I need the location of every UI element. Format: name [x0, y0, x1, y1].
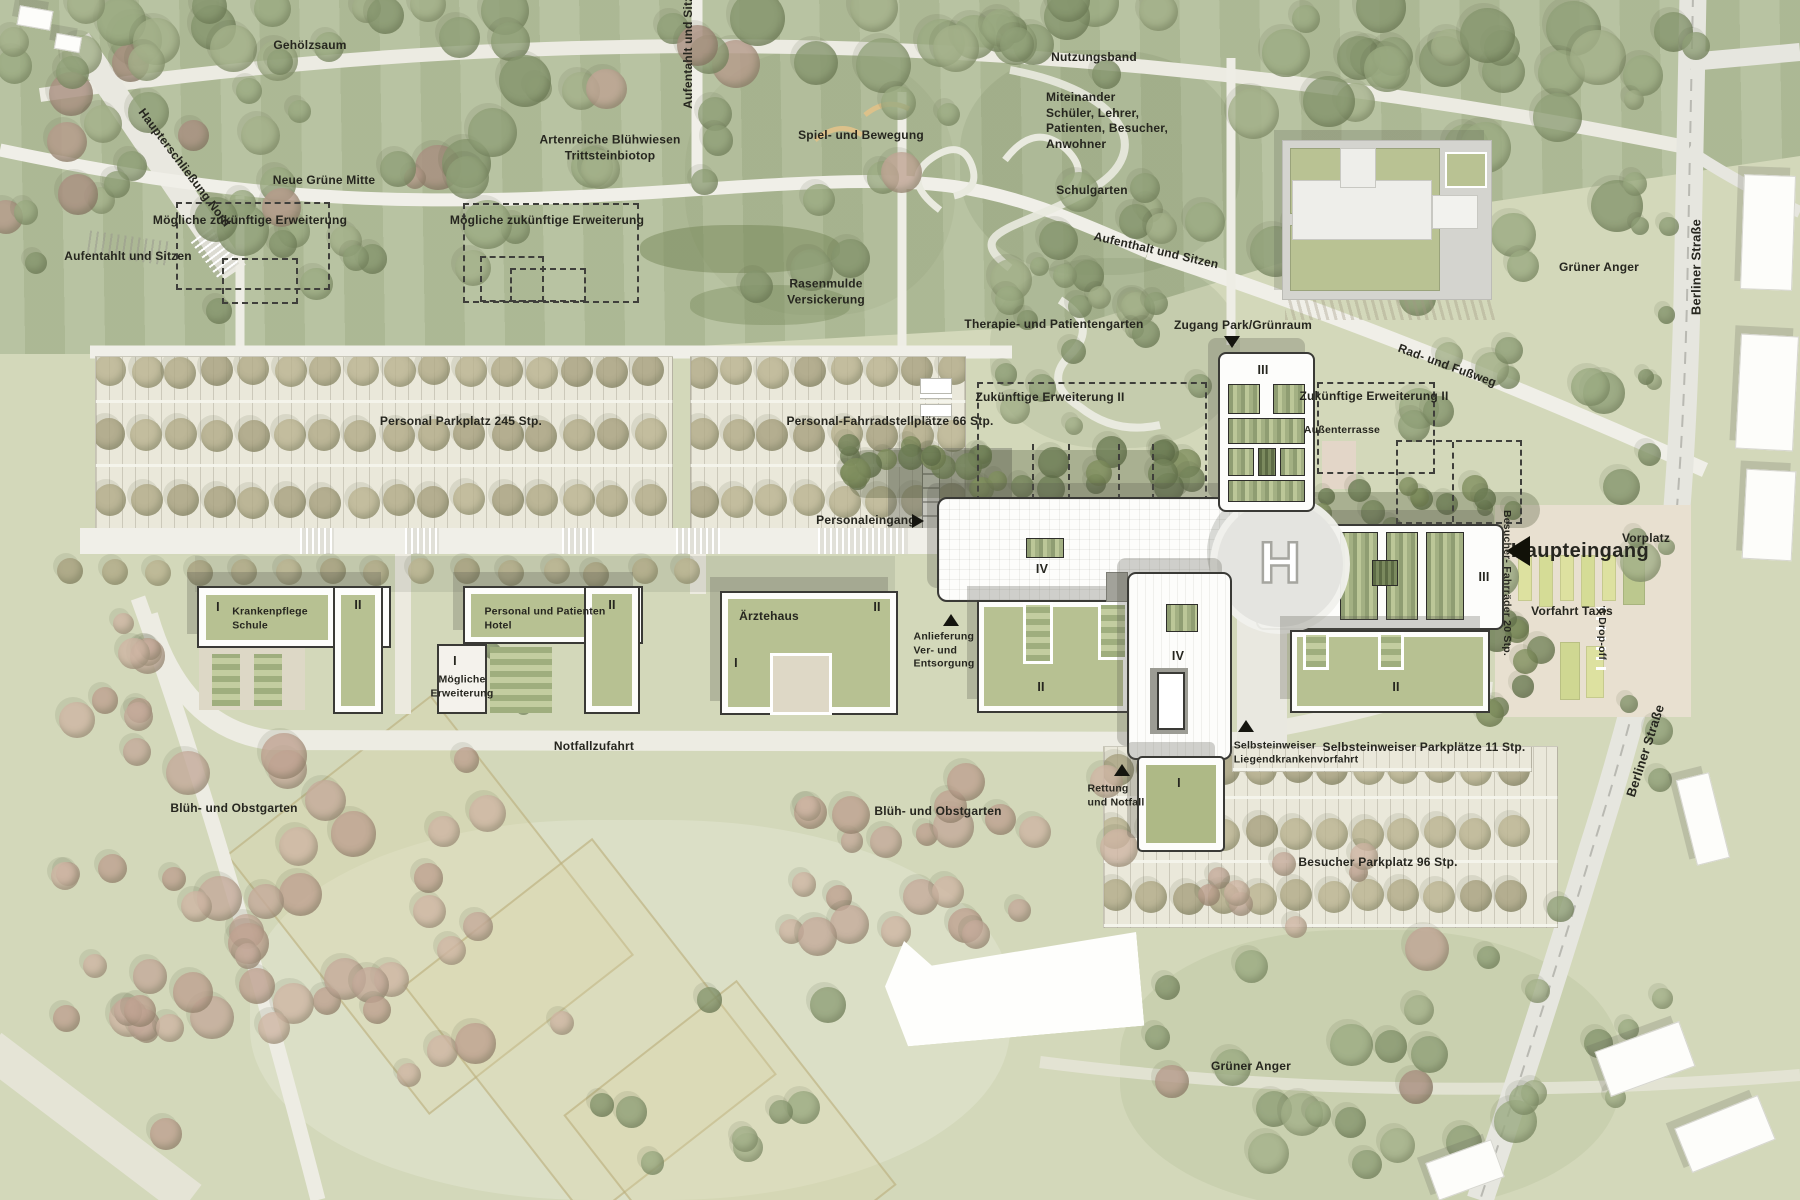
label-aussenterrasse: Außenterrasse — [1304, 424, 1380, 438]
level-label-ward-east-II: II — [1392, 679, 1399, 695]
label-berliner-strasse-top: Berliner Straße — [1689, 219, 1706, 315]
label-schulgarten: Schulgarten — [1056, 183, 1128, 199]
level-label-wing-IV: IV — [1172, 648, 1184, 664]
level-label-aerzte-I: I — [734, 655, 738, 671]
label-personal-parkplatz: Personal Parkplatz 245 Stp. — [380, 414, 542, 430]
label-berliner-strasse-bottom: Berliner Straße — [1623, 703, 1669, 800]
label-blueh-obstgarten-mid: Blüh- und Obstgarten — [874, 804, 1001, 820]
label-drop-off: 6 Drop-off — [1594, 608, 1608, 660]
zugang-park-arrow-icon — [1224, 336, 1240, 348]
label-fahrradstellplaetze: Personal-Fahrradstellplätze 66 Stp. — [786, 414, 993, 430]
label-aufenthalt-sitzen-right: Aufenthalt und Sitzen — [1092, 229, 1220, 273]
label-moegliche-erweiterung-hotel: Mögliche Erweiterung — [431, 673, 494, 700]
label-zuk-erweiterung-left: Zukünftige Erweiterung II — [975, 390, 1124, 406]
label-zugang-park: Zugang Park/Grünraum — [1174, 318, 1312, 334]
label-aufenthalt-sitzen-left: Aufentahlt und Sitzen — [64, 249, 192, 265]
label-gruener-anger-top: Grüner Anger — [1559, 260, 1639, 276]
label-zuk-erweiterung-right: Zukünftige Erweiterung II — [1299, 389, 1448, 405]
label-vorplatz: Vorplatz — [1622, 531, 1670, 547]
label-aufenthalt-sitzen-top: Aufentahlt und Sitzen — [681, 0, 697, 109]
label-moegliche-erweiterung-2: Mögliche zukünftige Erweiterung — [450, 213, 644, 229]
level-label-wing-III: III — [1478, 569, 1489, 585]
level-label-wing-I: I — [1177, 775, 1181, 791]
label-besucher-parkplatz: Besucher Parkplatz 96 Stp. — [1298, 855, 1457, 871]
level-label-hotel-I: I — [453, 653, 457, 669]
label-miteinander: Miteinander Schüler, Lehrer, Patienten, … — [1046, 90, 1168, 152]
label-nutzungsband: Nutzungsband — [1051, 50, 1137, 66]
anlieferung-arrow-icon — [943, 614, 959, 626]
site-plan-canvas: H Gehölzsaum Haupterschließung Nord Aufe… — [0, 0, 1800, 1200]
selbsteinweiser-arrow-icon — [1238, 720, 1254, 732]
level-label-ward-west-II: II — [1037, 679, 1044, 695]
label-aerztehaus: Ärztehaus — [739, 609, 799, 625]
label-anlieferung: Anlieferung Ver- und Entsorgung — [914, 631, 975, 672]
label-notfallzufahrt: Notfallzufahrt — [554, 739, 634, 755]
label-personaleingang: Personaleingang — [816, 513, 916, 529]
level-label-schule-I: I — [216, 599, 220, 615]
level-label-schule-II: II — [354, 597, 361, 613]
label-selbsteinweiser-parkplaetze: Selbsteinweiser Parkplätze 11 Stp. — [1323, 740, 1526, 756]
level-label-tower-III: III — [1257, 362, 1268, 378]
label-layer: Gehölzsaum Haupterschließung Nord Aufent… — [0, 0, 1800, 1200]
label-gehoelzsaum: Gehölzsaum — [273, 38, 346, 54]
label-personal-hotel: Personal und Patienten Hotel — [484, 605, 605, 632]
label-blueh-obstgarten-left: Blüh- und Obstgarten — [170, 801, 297, 817]
level-label-hotel-II: II — [608, 597, 615, 613]
label-gruener-anger-bottom: Grüner Anger — [1211, 1059, 1291, 1075]
label-therapiegarten: Therapie- und Patientengarten — [964, 317, 1143, 333]
label-rettung-notfall: Rettung und Notfall — [1087, 782, 1144, 809]
label-neue-gruene-mitte: Neue Grüne Mitte — [273, 173, 376, 189]
personaleingang-arrow-icon — [912, 514, 924, 528]
label-spiel-bewegung: Spiel- und Bewegung — [798, 128, 924, 144]
label-krankenpflege-schule: Krankenpflege Schule — [232, 605, 308, 632]
label-besucher-fahrraeder: Besucher- Fahrräder 20 Stp. — [1499, 510, 1513, 656]
level-label-main-IV: IV — [1036, 561, 1048, 577]
level-label-aerzte-II: II — [873, 599, 880, 615]
rettung-arrow-icon — [1114, 764, 1130, 776]
label-bluehwiesen: Artenreiche Blühwiesen Trittsteinbiotop — [539, 132, 680, 163]
label-rasenmulde: Rasenmulde Versickerung — [787, 276, 865, 307]
label-rad-fussweg: Rad- und Fußweg — [1396, 341, 1499, 391]
label-moegliche-erweiterung-1: Mögliche zukünftige Erweiterung — [153, 213, 347, 229]
label-haupterschliessung-nord: Haupterschließung Nord — [134, 106, 233, 231]
